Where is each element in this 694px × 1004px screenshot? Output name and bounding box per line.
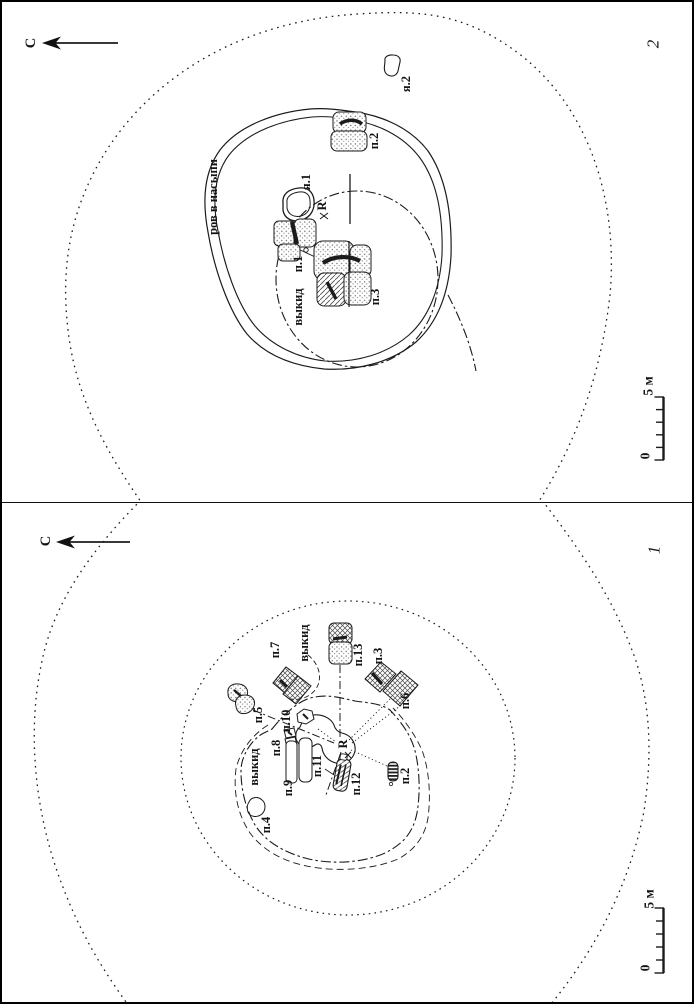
- pit-ya1-shape: [283, 188, 314, 221]
- scale-bar: [655, 397, 665, 460]
- burial-p10-shape: [297, 709, 314, 724]
- scale-five-label: 5 м: [641, 376, 656, 395]
- scale-zero-label: 0: [638, 452, 653, 459]
- burial-p2-shape: [388, 762, 398, 786]
- burial-p7-shape: [273, 667, 311, 704]
- datum-mark: [320, 213, 328, 219]
- panel-divider: [0, 502, 694, 503]
- vykid-boundary-dashed: [235, 708, 429, 869]
- outer-dashdot-arc: [448, 295, 476, 371]
- p4-label: п.4: [259, 816, 273, 833]
- figure-page: С ров в насыпи выкид я.1 я.2 п.1 п.2 п.3…: [0, 0, 694, 1004]
- scale-five-label: 5 м: [642, 889, 657, 908]
- p11-label: п.11: [310, 755, 324, 777]
- ditch-ring: [205, 109, 451, 370]
- burial-p13-shape: [329, 623, 352, 664]
- p9-label: п.9: [281, 780, 295, 797]
- p1-label: п.1: [291, 256, 305, 273]
- north-arrow-icon: [42, 37, 118, 50]
- p5-label: п.5: [251, 707, 265, 724]
- p8-label: п.8: [269, 740, 283, 757]
- p6-label: п.6: [398, 693, 412, 710]
- p3-label: п.3: [371, 648, 385, 665]
- north-label: С: [38, 536, 54, 546]
- vykid-left-label: выкид: [247, 748, 261, 786]
- scale-bar: [655, 908, 665, 973]
- p3-label: п.3: [368, 289, 382, 306]
- panel-number: 1: [645, 546, 664, 555]
- p13-label: п.13: [351, 644, 365, 667]
- panel-number: 2: [644, 39, 663, 48]
- burial-p2-shape: [331, 112, 367, 151]
- north-label: С: [23, 38, 39, 48]
- kurgan-2-plan: С ров в насыпи выкид я.1 я.2 п.1 п.2 п.3…: [0, 0, 694, 503]
- p10-label: п.10: [279, 710, 293, 733]
- p11-pointer-line: [325, 769, 334, 775]
- burial-p3-shape: [314, 241, 371, 307]
- p2-label: п.2: [398, 768, 412, 785]
- ya1-label: я.1: [299, 174, 313, 190]
- p7-label: п.7: [268, 642, 282, 659]
- ya2-label: я.2: [399, 76, 413, 92]
- vykid-center-label: выкид: [297, 624, 311, 662]
- p2-label: п.2: [367, 133, 381, 150]
- scale-zero-label: 0: [638, 964, 653, 971]
- p12-label: п.12: [349, 773, 363, 796]
- ditch-label: ров в насыпи: [206, 159, 220, 235]
- pit-ya2-shape: [384, 55, 400, 76]
- north-arrow-icon: [56, 536, 130, 549]
- r-label: R: [315, 201, 329, 211]
- vykid-label: выкид: [291, 288, 305, 326]
- kurgan-1-plan: С выкид выкид п.2 п.3 п.4 п.5 п.6 п.7 п.…: [0, 503, 694, 1004]
- burial-p9-shape: [286, 738, 312, 783]
- r-label: R: [336, 739, 350, 749]
